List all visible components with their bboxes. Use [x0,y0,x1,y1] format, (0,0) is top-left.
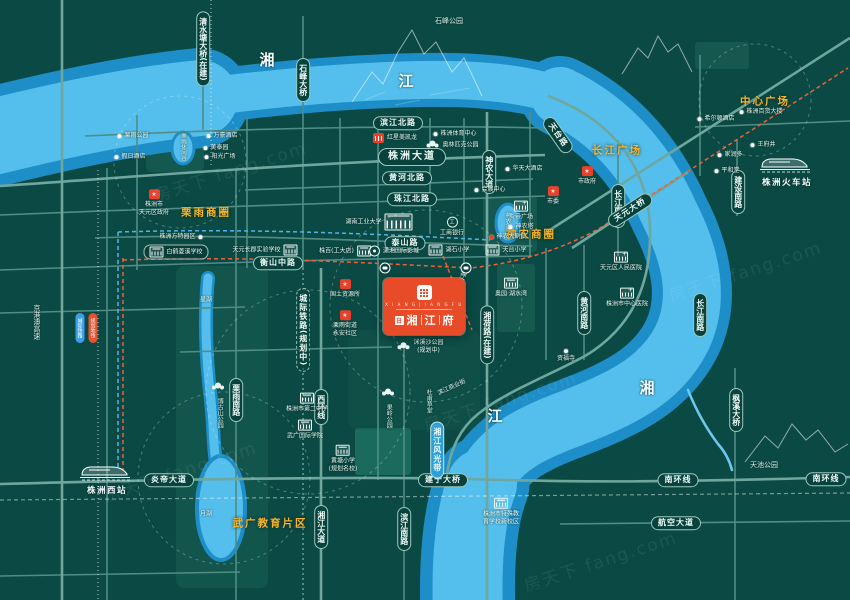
project-seal: 日 [395,316,404,325]
project-divider [396,309,452,310]
map-canvas[interactable]: 栗雨商圈神农商圈长江广场中心广场武广教育片区滨江北路株洲大道黄河北路珠江北路泰山… [0,0,850,600]
liyu-valley-lake [172,132,194,164]
shennong-lake [496,204,520,242]
moon-lake [197,456,245,560]
project-name: 日 湘 江 府 [395,312,454,328]
project-name-char: 湘 [407,312,418,328]
project-logo-icon [417,285,432,300]
northeast-mountain-icon [622,36,692,74]
project-marker[interactable]: X I A N G J I A N G F U 日 湘 江 府 [383,278,465,335]
stream [688,390,732,470]
project-name-char: 府 [443,312,454,328]
project-latin: X I A N G J I A N G F U [385,302,463,307]
project-name-char: 江 [425,312,436,328]
tianchi-mountain-icon [745,424,848,462]
